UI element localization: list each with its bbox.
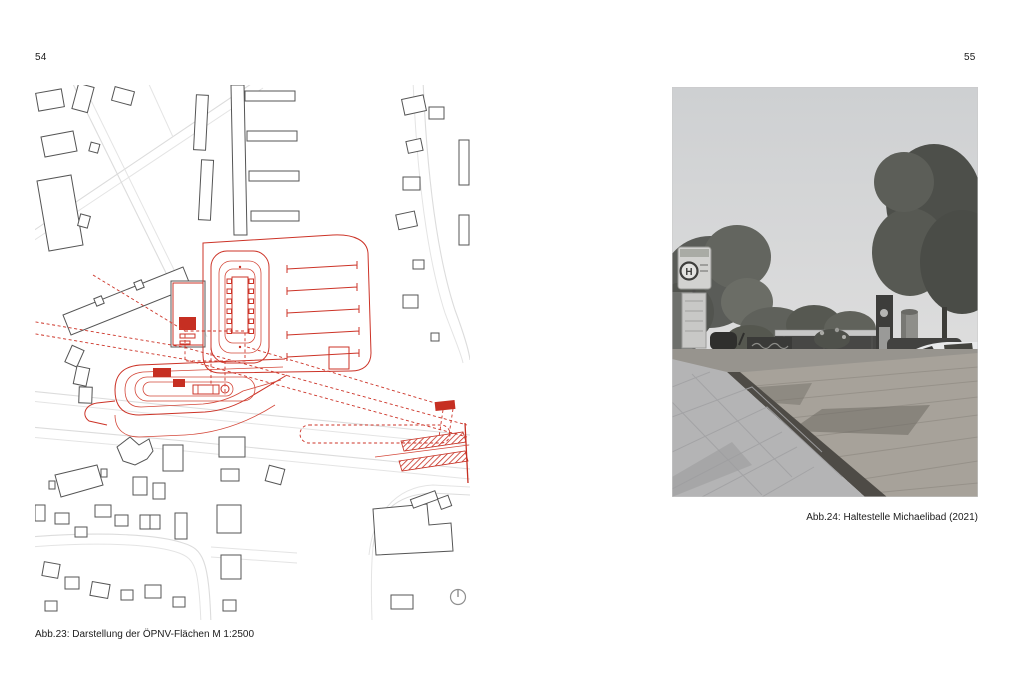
h-sign-letter: H bbox=[685, 267, 692, 278]
stele-logo bbox=[880, 309, 888, 317]
page-number-right: 55 bbox=[964, 52, 976, 63]
site-plan-figure bbox=[35, 85, 470, 620]
bus-loop-area bbox=[85, 359, 287, 437]
park-and-ride-area bbox=[287, 261, 359, 369]
photo-svg: H bbox=[672, 87, 978, 497]
figure-caption-map: Abb.23: Darstellung der ÖPNV-Flächen M 1… bbox=[35, 629, 254, 640]
site-plan-svg bbox=[35, 85, 470, 620]
bus-terminal-area bbox=[203, 235, 371, 373]
ground bbox=[672, 349, 978, 497]
document-spread: { "spread": { "background_color": "#ffff… bbox=[0, 0, 1016, 700]
tram-platforms bbox=[375, 400, 469, 483]
figure-caption-photo: Abb.24: Haltestelle Michaelibad (2021) bbox=[672, 512, 978, 523]
transit-areas bbox=[35, 235, 469, 483]
photo-figure: H bbox=[672, 87, 978, 497]
building-footprints bbox=[35, 85, 469, 611]
north-arrow-icon bbox=[451, 590, 466, 605]
page-number-left: 54 bbox=[35, 52, 47, 63]
